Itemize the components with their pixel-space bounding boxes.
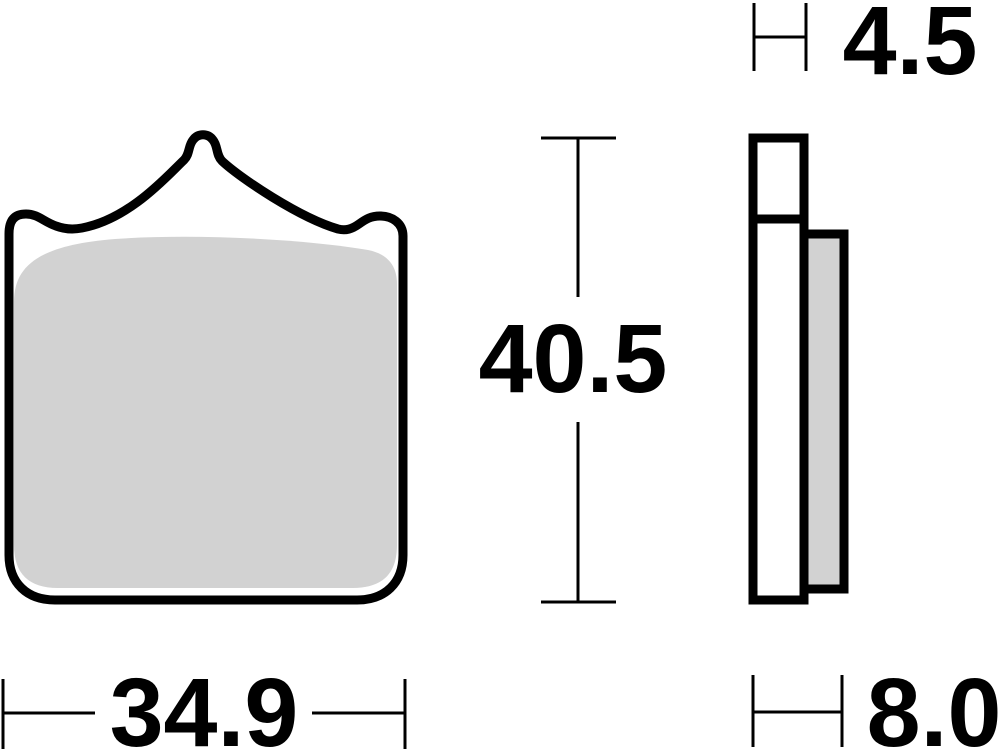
dimension-backplate-thickness: 4.5 bbox=[754, 0, 977, 95]
brake-pad-technical-drawing: 40.5 34.9 4.5 8.0 bbox=[0, 0, 1000, 751]
dim-total-label: 8.0 bbox=[867, 658, 1000, 751]
dimension-front-width: 34.9 bbox=[3, 658, 405, 751]
dimension-front-height: 40.5 bbox=[479, 138, 668, 602]
side-backplate bbox=[753, 138, 804, 600]
side-friction-pad bbox=[804, 234, 844, 589]
side-view bbox=[751, 138, 844, 600]
dimension-total-thickness: 8.0 bbox=[753, 658, 1000, 751]
dim-height-label: 40.5 bbox=[479, 304, 668, 413]
front-view bbox=[9, 135, 403, 600]
dim-width-label: 34.9 bbox=[110, 658, 299, 751]
dim-backplate-label: 4.5 bbox=[843, 0, 978, 95]
front-friction-material bbox=[14, 237, 397, 588]
